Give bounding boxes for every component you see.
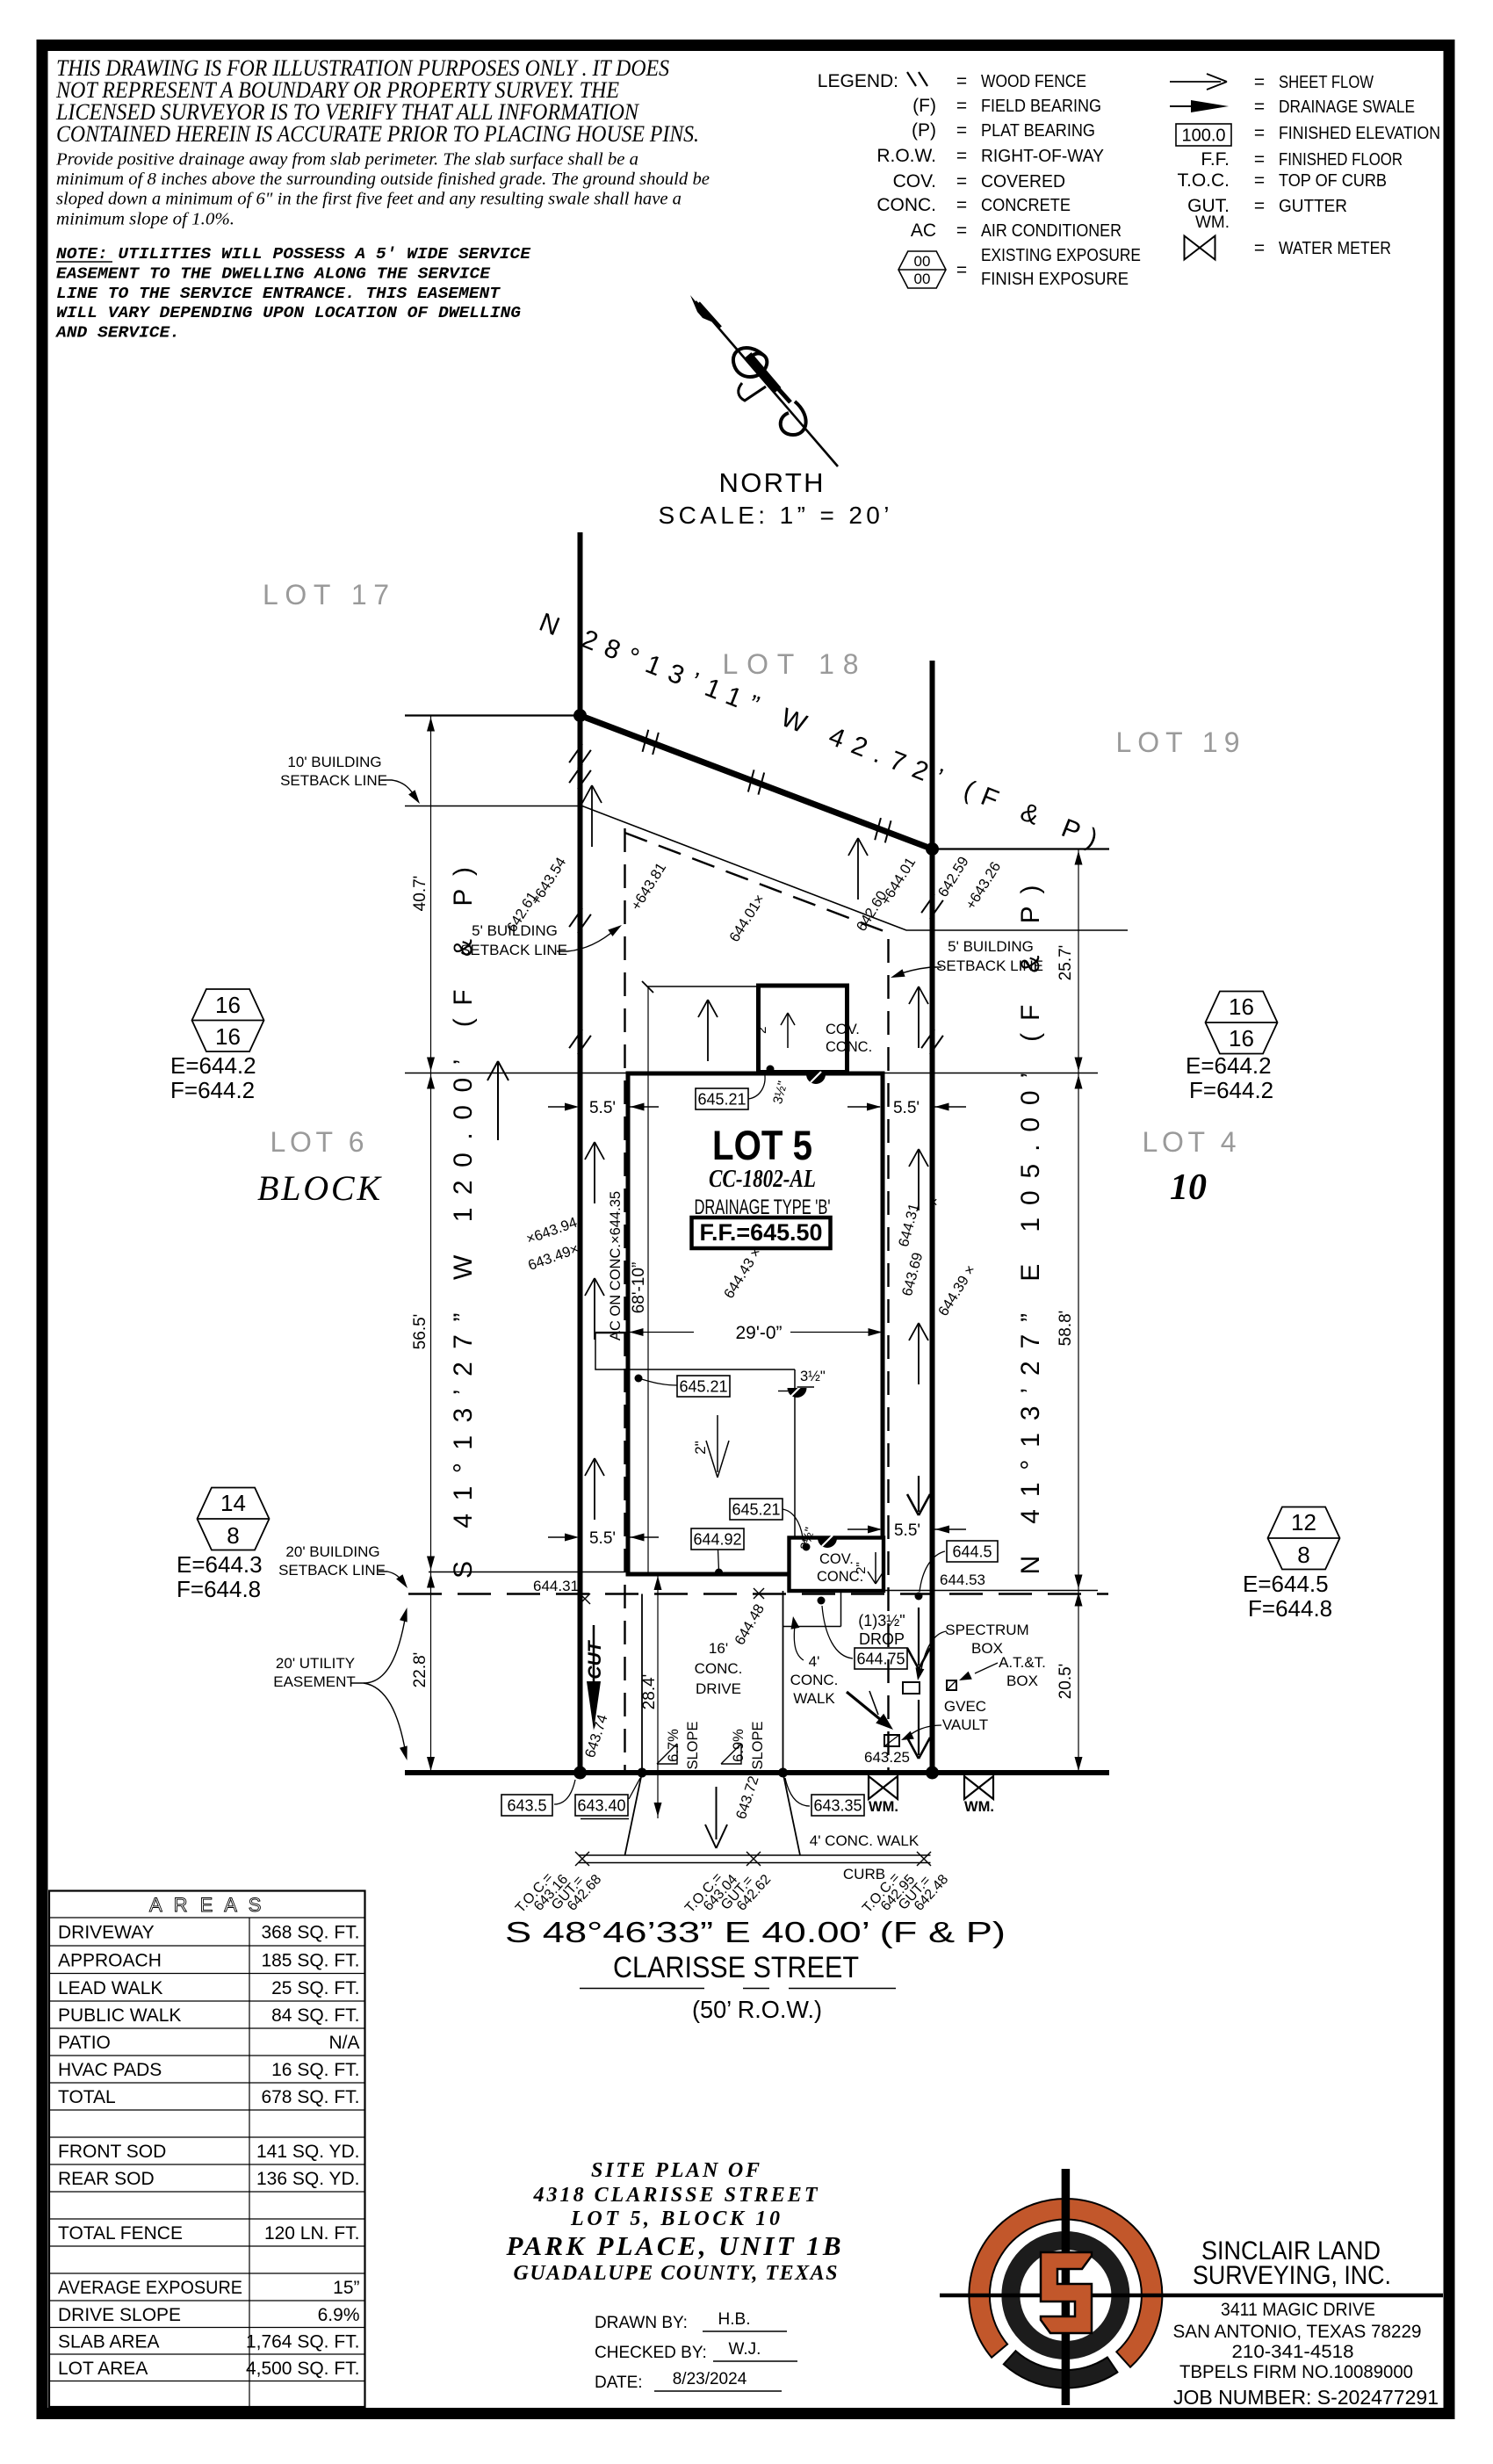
svg-text:A.T.&T.: A.T.&T. (999, 1654, 1046, 1671)
svg-text:=: = (1254, 72, 1265, 92)
svg-text:DATE:: DATE: (595, 2374, 643, 2392)
svg-text:DRIVE SLOPE: DRIVE SLOPE (58, 2305, 181, 2325)
svg-text:S 48°46’33” E 40.00’ (F &: S 48°46’33” E 40.00’ (F & P) (505, 1916, 1006, 1948)
svg-text:14: 14 (220, 1490, 246, 1516)
svg-text:EASEMENT: EASEMENT (273, 1673, 356, 1690)
svg-text:TOP OF CURB: TOP OF CURB (1279, 170, 1387, 191)
svg-text:16: 16 (1229, 1025, 1254, 1051)
svg-text:T.O.C.: T.O.C. (1177, 170, 1230, 191)
svg-text:SPECTRUM: SPECTRUM (945, 1622, 1028, 1638)
svg-text:LOT AREA: LOT AREA (58, 2359, 148, 2379)
svg-text:(1)3½": (1)3½" (858, 1612, 905, 1629)
svg-text:16: 16 (1229, 994, 1254, 1020)
svg-text:CONC.: CONC. (817, 1569, 863, 1585)
svg-text:sloped down a minimum of 6" in: sloped down a minimum of 6" in the first… (56, 191, 682, 209)
svg-text:F.F.: F.F. (1201, 149, 1230, 170)
svg-text:EASEMENT TO THE DWELLING ALONG: EASEMENT TO THE DWELLING ALONG THE SERVI… (56, 264, 491, 283)
svg-text:CURB: CURB (843, 1866, 885, 1882)
svg-text:GUADALUPE COUNTY, TEXAS: GUADALUPE COUNTY, TEXAS (514, 2262, 838, 2285)
svg-text:8: 8 (227, 1522, 239, 1549)
svg-text:EXISTING EXPOSURE: EXISTING EXPOSURE (981, 245, 1141, 265)
svg-text:F.F.=645.50: F.F.=645.50 (700, 1219, 823, 1246)
svg-text:WOOD FENCE: WOOD FENCE (981, 71, 1086, 91)
svg-text:minimum of 8 inches above the: minimum of 8 inches above the surroundin… (56, 170, 710, 189)
svg-text:CONC.: CONC. (876, 195, 936, 215)
svg-text:00: 00 (914, 253, 931, 270)
svg-text:FRONT SOD: FRONT SOD (58, 2142, 166, 2162)
svg-text:R.O.W.: R.O.W. (876, 146, 936, 166)
svg-text:CONC.: CONC. (790, 1672, 839, 1688)
svg-text:5.5': 5.5' (894, 1521, 920, 1540)
svg-text:644.92: 644.92 (693, 1530, 741, 1548)
svg-text:FINISH EXPOSURE: FINISH EXPOSURE (981, 269, 1129, 289)
svg-text:S 41°13’27” W 120.00’ (F: S 41°13’27” W 120.00’ (F & P) (449, 867, 478, 1579)
svg-text:TOTAL: TOTAL (58, 2087, 116, 2107)
svg-text:COV.: COV. (893, 171, 936, 191)
svg-text:8: 8 (1297, 1542, 1309, 1568)
svg-text:CUT: CUT (585, 1639, 605, 1679)
svg-text:6.7%: 6.7% (666, 1729, 682, 1762)
svg-text:PARK PLACE, UNIT 1B: PARK PLACE, UNIT 1B (506, 2230, 841, 2261)
svg-text:E=644.5: E=644.5 (1243, 1571, 1329, 1597)
svg-text:APPROACH: APPROACH (58, 1950, 162, 1970)
svg-text:644.53: 644.53 (940, 1572, 985, 1588)
svg-text:FIELD BEARING: FIELD BEARING (981, 96, 1101, 116)
svg-text:DRIVEWAY: DRIVEWAY (58, 1923, 155, 1943)
svg-text:NORTH: NORTH (719, 467, 824, 498)
svg-text:=: = (956, 71, 967, 91)
svg-text:COV.: COV. (819, 1551, 854, 1567)
svg-text:COVERED: COVERED (981, 171, 1065, 191)
svg-text:5.5': 5.5' (893, 1099, 920, 1117)
svg-text:AC ON CONC.×644.35: AC ON CONC.×644.35 (608, 1191, 624, 1340)
svg-text:PUBLIC WALK: PUBLIC WALK (58, 2005, 181, 2026)
svg-text:644.31: 644.31 (533, 1578, 579, 1594)
svg-text:AND SERVICE.: AND SERVICE. (55, 324, 180, 343)
svg-text:WATER METER: WATER METER (1279, 238, 1391, 258)
svg-text:AC: AC (911, 220, 936, 241)
svg-text:645.21: 645.21 (697, 1090, 746, 1108)
svg-text:136 SQ. YD.: 136 SQ. YD. (256, 2169, 360, 2189)
svg-text:H.B.: H.B. (718, 2310, 751, 2329)
svg-text:F=644.2: F=644.2 (170, 1077, 255, 1103)
svg-text:DRIVE: DRIVE (696, 1680, 741, 1697)
svg-text:COV.: COV. (826, 1022, 860, 1037)
svg-text:10' BUILDING: 10' BUILDING (287, 754, 381, 770)
svg-text:8/23/2024: 8/23/2024 (673, 2370, 747, 2388)
svg-text:PLAT BEARING: PLAT BEARING (981, 120, 1095, 141)
svg-text:GUTTER: GUTTER (1279, 196, 1347, 216)
svg-text:29'-0”: 29'-0” (735, 1323, 782, 1343)
svg-text:=: = (956, 195, 967, 215)
svg-text:25.7': 25.7' (1057, 945, 1075, 981)
svg-text:×: × (929, 1195, 938, 1210)
svg-text:TBPELS FIRM NO.10089000: TBPELS FIRM NO.10089000 (1179, 2361, 1413, 2382)
svg-text:LEAD WALK: LEAD WALK (58, 1978, 162, 1998)
svg-text:BOX: BOX (1006, 1673, 1038, 1689)
svg-text:84 SQ. FT.: 84 SQ. FT. (271, 2005, 359, 2026)
svg-text:RIGHT-OF-WAY: RIGHT-OF-WAY (981, 146, 1104, 166)
svg-text:DRAWN BY:: DRAWN BY: (595, 2314, 688, 2332)
svg-text:4': 4' (809, 1653, 820, 1670)
svg-text:CHECKED BY:: CHECKED BY: (595, 2344, 707, 2362)
svg-text:FINISHED ELEVATION: FINISHED ELEVATION (1279, 123, 1440, 143)
svg-text:210-341-4518: 210-341-4518 (1232, 2341, 1354, 2362)
svg-text:minimum slope of 1.0%.: minimum slope of 1.0%. (56, 210, 234, 228)
svg-text:SAN ANTONIO, TEXAS 78229: SAN ANTONIO, TEXAS 78229 (1173, 2321, 1422, 2342)
svg-text:CONC.: CONC. (826, 1039, 872, 1055)
svg-text:643.40: 643.40 (577, 1796, 625, 1814)
svg-text:16: 16 (215, 1023, 241, 1050)
svg-text:12: 12 (1291, 1509, 1316, 1535)
svg-text:SLOPE: SLOPE (750, 1721, 766, 1769)
svg-text:GVEC: GVEC (944, 1698, 986, 1715)
svg-text:AIR CONDITIONER: AIR CONDITIONER (981, 220, 1122, 241)
svg-text:678 SQ. FT.: 678 SQ. FT. (261, 2087, 359, 2107)
svg-text:F=644.8: F=644.8 (177, 1576, 261, 1602)
svg-text:JOB NUMBER: S-202477291: JOB NUMBER: S-202477291 (1173, 2386, 1439, 2409)
svg-text:6.9%: 6.9% (731, 1729, 746, 1762)
svg-text:25 SQ. FT.: 25 SQ. FT. (271, 1978, 359, 1998)
svg-text:643.35: 643.35 (813, 1796, 862, 1814)
svg-text:WM.: WM. (1195, 213, 1230, 232)
svg-text:DROP: DROP (859, 1630, 905, 1648)
svg-text:3411 MAGIC DRIVE: 3411 MAGIC DRIVE (1221, 2299, 1375, 2320)
svg-text:58.8': 58.8' (1057, 1311, 1075, 1347)
svg-text:20.5': 20.5' (1057, 1664, 1075, 1700)
svg-text:WM.: WM. (964, 1799, 994, 1815)
svg-text:DRAINAGE SWALE: DRAINAGE SWALE (1279, 97, 1415, 117)
svg-text:16: 16 (215, 992, 241, 1018)
svg-text:SHEET FLOW: SHEET FLOW (1279, 72, 1374, 92)
svg-text:F=644.2: F=644.2 (1189, 1077, 1273, 1103)
svg-text:100.0: 100.0 (1181, 126, 1225, 146)
svg-text:LOT 6: LOT 6 (270, 1126, 364, 1158)
svg-text:WALK: WALK (793, 1690, 835, 1707)
svg-text:368 SQ. FT.: 368 SQ. FT. (261, 1923, 359, 1943)
svg-text:=: = (956, 220, 967, 241)
svg-text:=: = (1254, 149, 1265, 170)
svg-text:NOTE: UTILITIES WILL POSSESS A: NOTE: UTILITIES WILL POSSESS A 5' WIDE S… (56, 245, 531, 264)
svg-text:SCALE: 1” = 20’: SCALE: 1” = 20’ (659, 502, 890, 529)
svg-text:TOTAL FENCE: TOTAL FENCE (58, 2223, 183, 2244)
svg-text:CONTAINED HEREIN IS ACCURATE P: CONTAINED HEREIN IS ACCURATE PRIOR TO PL… (56, 120, 699, 147)
svg-text:SETBACK LINE: SETBACK LINE (278, 1562, 386, 1579)
svg-text:644.5: 644.5 (952, 1543, 992, 1560)
svg-text:20' BUILDING: 20' BUILDING (285, 1543, 379, 1560)
svg-text:=: = (956, 260, 967, 280)
svg-text:644.75: 644.75 (856, 1650, 905, 1667)
svg-text:F=644.8: F=644.8 (1248, 1595, 1332, 1622)
svg-text:20' UTILITY: 20' UTILITY (276, 1655, 355, 1672)
svg-text:=: = (1254, 123, 1265, 143)
svg-text:REAR SOD: REAR SOD (58, 2169, 155, 2189)
svg-text:2": 2" (692, 1441, 709, 1455)
svg-text:141 SQ. YD.: 141 SQ. YD. (256, 2142, 360, 2162)
svg-text:5.5': 5.5' (589, 1529, 616, 1548)
svg-text:WILL VARY DEPENDING UPON LOCAT: WILL VARY DEPENDING UPON LOCATION OF DWE… (56, 304, 521, 322)
svg-text:N/A: N/A (328, 2033, 359, 2053)
svg-text:CC-1802-AL: CC-1802-AL (709, 1166, 816, 1193)
svg-text:AVERAGE EXPOSURE: AVERAGE EXPOSURE (58, 2278, 242, 2298)
svg-text:E=644.2: E=644.2 (170, 1052, 256, 1079)
svg-text:BLOCK: BLOCK (257, 1168, 382, 1208)
svg-text:FINISHED FLOOR: FINISHED FLOOR (1279, 149, 1403, 170)
svg-text:56.5': 56.5' (411, 1314, 429, 1350)
svg-text:15”: 15” (333, 2278, 359, 2298)
svg-text:SLAB AREA: SLAB AREA (58, 2331, 160, 2352)
svg-text:Provide positive drainage away: Provide positive drainage away from slab… (55, 151, 638, 170)
svg-text:3½": 3½" (800, 1369, 826, 1384)
svg-text:CLARISSE STREET: CLARISSE STREET (613, 1951, 859, 1984)
svg-text:LOT 5: LOT 5 (712, 1122, 812, 1168)
svg-text:E=644.2: E=644.2 (1186, 1052, 1272, 1079)
svg-text:40.7': 40.7' (411, 876, 429, 912)
svg-text:SITE PLAN OF: SITE PLAN OF (591, 2159, 760, 2182)
svg-text:SETBACK LINE: SETBACK LINE (280, 772, 387, 789)
svg-text:VAULT: VAULT (942, 1716, 988, 1733)
svg-text:W.J.: W.J. (729, 2340, 761, 2359)
svg-text:=: = (1254, 97, 1265, 117)
svg-text:=: = (956, 120, 967, 141)
svg-text:SLOPE: SLOPE (685, 1721, 701, 1769)
svg-text:LEGEND:: LEGEND: (818, 71, 898, 91)
svg-text:=: = (956, 146, 967, 166)
svg-text:00: 00 (914, 271, 931, 287)
svg-text:WM.: WM. (869, 1799, 898, 1815)
svg-text:1,764 SQ. FT.: 1,764 SQ. FT. (246, 2331, 360, 2352)
svg-text:LINE TO THE SERVICE ENTRANCE.: LINE TO THE SERVICE ENTRANCE. THIS EASEM… (56, 285, 501, 303)
svg-text:CONCRETE: CONCRETE (981, 195, 1071, 215)
svg-text:(P): (P) (912, 120, 936, 141)
svg-text:643.5: 643.5 (507, 1796, 546, 1814)
svg-text:4318 CLARISSE STREET: 4318 CLARISSE STREET (533, 2184, 819, 2207)
svg-text:10: 10 (1170, 1167, 1207, 1208)
svg-text:A R E A S: A R E A S (149, 1894, 264, 1916)
svg-text:E=644.3: E=644.3 (177, 1551, 263, 1578)
svg-text:22.8': 22.8' (411, 1652, 429, 1688)
svg-text:(50’ R.O.W.): (50’ R.O.W.) (692, 1996, 822, 2023)
svg-text:=: = (1254, 170, 1265, 191)
svg-text:SURVEYING, INC.: SURVEYING, INC. (1193, 2261, 1391, 2290)
svg-text:2": 2" (754, 1022, 769, 1034)
svg-text:4' CONC. WALK: 4' CONC. WALK (810, 1832, 920, 1849)
svg-text:HVAC PADS: HVAC PADS (58, 2060, 162, 2080)
svg-text:6.9%: 6.9% (318, 2305, 360, 2325)
svg-text:=: = (956, 171, 967, 191)
svg-text:16 SQ. FT.: 16 SQ. FT. (271, 2060, 359, 2080)
svg-text:68'-10”: 68'-10” (630, 1262, 648, 1314)
svg-text:28.4': 28.4' (640, 1674, 659, 1710)
svg-text:LOT 4: LOT 4 (1143, 1126, 1237, 1158)
svg-text:PATIO: PATIO (58, 2033, 111, 2053)
svg-text:185 SQ. FT.: 185 SQ. FT. (261, 1950, 359, 1970)
svg-text:=: = (1254, 196, 1265, 216)
svg-text:4,500 SQ. FT.: 4,500 SQ. FT. (246, 2359, 360, 2379)
svg-text:5.5': 5.5' (589, 1099, 616, 1117)
svg-text:=: = (956, 96, 967, 116)
svg-text:16': 16' (709, 1640, 728, 1657)
svg-text:645.21: 645.21 (732, 1500, 780, 1518)
svg-text:(F): (F) (912, 96, 936, 116)
svg-text:645.21: 645.21 (679, 1377, 727, 1395)
svg-text:=: = (1254, 238, 1265, 258)
svg-text:CONC.: CONC. (695, 1660, 743, 1677)
svg-text:120 LN. FT.: 120 LN. FT. (264, 2223, 360, 2244)
svg-text:643.25: 643.25 (864, 1749, 910, 1766)
